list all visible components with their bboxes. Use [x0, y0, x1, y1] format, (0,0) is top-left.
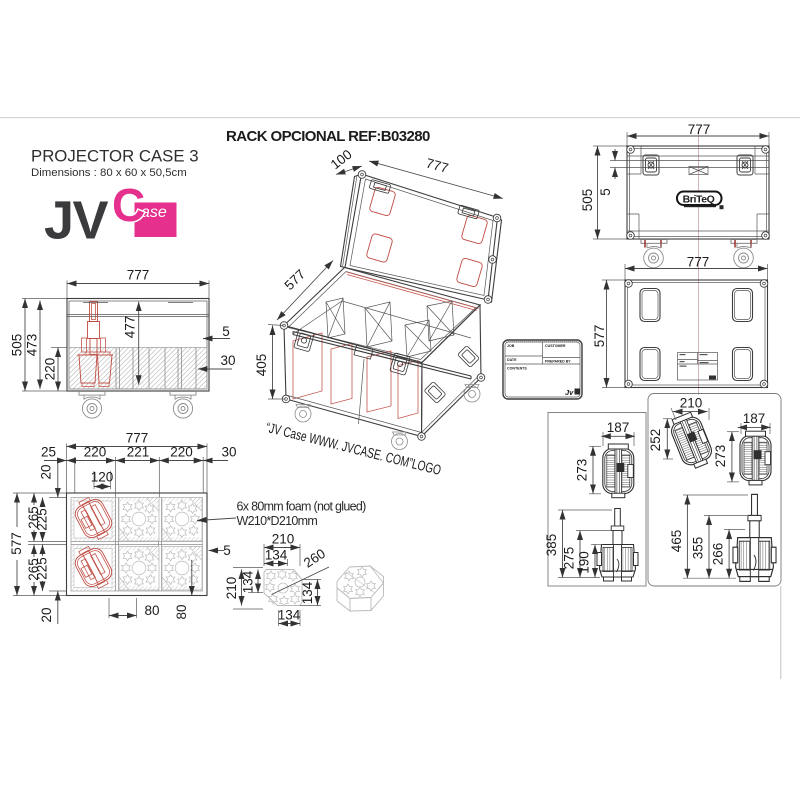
svg-text:777: 777 — [688, 122, 711, 137]
svg-text:210: 210 — [680, 396, 703, 411]
svg-text:477: 477 — [123, 316, 138, 339]
svg-text:777: 777 — [687, 255, 710, 270]
svg-text:CONTENTS: CONTENTS — [507, 367, 527, 371]
svg-text:225: 225 — [35, 557, 50, 580]
svg-text:80: 80 — [174, 604, 189, 619]
svg-text:C: C — [112, 179, 145, 231]
svg-text:187: 187 — [743, 411, 766, 426]
svg-text:405: 405 — [254, 354, 269, 377]
svg-text:25: 25 — [41, 445, 56, 460]
svg-text:505: 505 — [580, 189, 595, 212]
svg-text:220: 220 — [84, 445, 107, 460]
svg-text:RACK OPCIONAL REF:B03280: RACK OPCIONAL REF:B03280 — [226, 128, 430, 145]
svg-text:BriTeQ: BriTeQ — [683, 194, 715, 206]
svg-text:355: 355 — [691, 537, 706, 560]
svg-text:190: 190 — [577, 551, 592, 574]
svg-text:20: 20 — [39, 464, 54, 479]
svg-text:225: 225 — [35, 508, 50, 531]
svg-text:187: 187 — [607, 420, 630, 435]
svg-text:PROJECTOR CASE 3: PROJECTOR CASE 3 — [31, 147, 199, 166]
svg-text:5: 5 — [598, 188, 613, 196]
svg-text:Dimensions : 80 x 60 x 50,5cm: Dimensions : 80 x 60 x 50,5cm — [31, 167, 187, 179]
svg-text:465: 465 — [669, 530, 684, 553]
svg-text:273: 273 — [713, 445, 728, 468]
svg-text:252: 252 — [648, 429, 663, 452]
svg-text:5: 5 — [222, 324, 230, 339]
svg-text:266: 266 — [711, 543, 726, 566]
svg-text:473: 473 — [25, 334, 40, 357]
svg-text:80: 80 — [144, 603, 159, 618]
svg-text:220: 220 — [170, 445, 193, 460]
svg-text:777: 777 — [127, 268, 150, 283]
svg-text:134: 134 — [241, 570, 256, 593]
svg-text:385: 385 — [544, 534, 559, 557]
svg-text:20: 20 — [39, 607, 54, 622]
svg-text:DATE: DATE — [507, 358, 517, 362]
svg-text:221: 221 — [127, 445, 150, 460]
svg-text:Jv: Jv — [565, 388, 574, 397]
svg-text:134: 134 — [300, 581, 315, 604]
svg-text:W210*D210mm: W210*D210mm — [237, 514, 318, 528]
svg-text:PREPARED BY: PREPARED BY — [545, 360, 571, 364]
svg-text:134: 134 — [265, 548, 288, 563]
svg-text:220: 220 — [43, 358, 58, 381]
svg-text:210: 210 — [272, 532, 295, 547]
svg-text:273: 273 — [575, 459, 590, 482]
svg-text:777: 777 — [126, 431, 149, 446]
svg-text:30: 30 — [221, 445, 236, 460]
svg-text:134: 134 — [278, 608, 301, 623]
svg-text:CUSTOMER: CUSTOMER — [545, 344, 566, 348]
svg-text:577: 577 — [592, 325, 607, 348]
svg-text:6x 80mm foam (not glued): 6x 80mm foam (not glued) — [237, 500, 367, 514]
svg-text:JV: JV — [44, 191, 109, 251]
svg-text:577: 577 — [9, 532, 24, 555]
svg-text:120: 120 — [91, 470, 114, 485]
svg-text:275: 275 — [562, 547, 577, 570]
svg-text:505: 505 — [10, 334, 25, 357]
svg-text:5: 5 — [223, 543, 231, 558]
svg-text:210: 210 — [224, 577, 239, 600]
svg-text:30: 30 — [220, 353, 235, 368]
svg-text:JOB: JOB — [507, 344, 515, 348]
